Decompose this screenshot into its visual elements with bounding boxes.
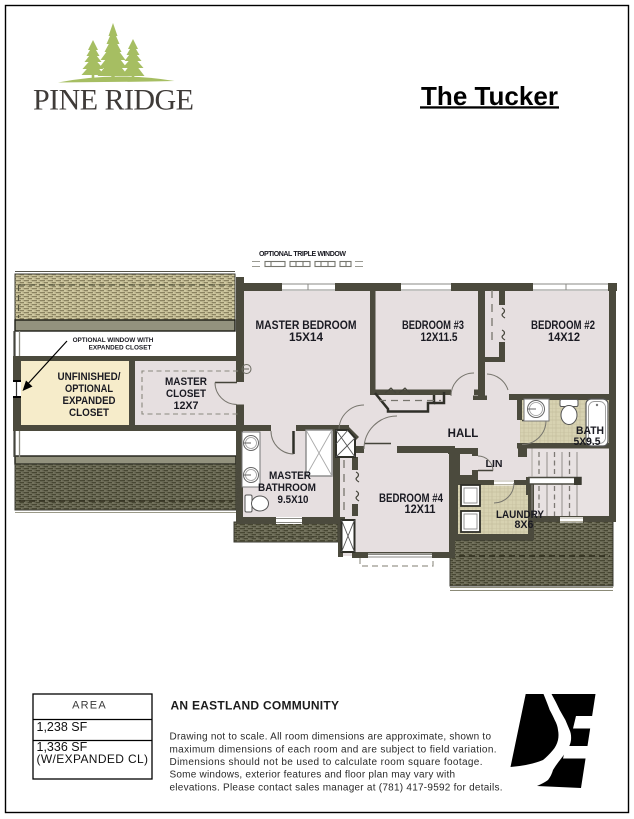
svg-text:MASTER BEDROOM: MASTER BEDROOM	[256, 320, 357, 332]
svg-text:9.5X10: 9.5X10	[278, 494, 309, 506]
svg-text:15X14: 15X14	[289, 332, 324, 344]
svg-text:AREA: AREA	[72, 700, 107, 712]
svg-text:Some windows, exterior feature: Some windows, exterior features and floo…	[170, 770, 456, 781]
svg-text:EXPANDED: EXPANDED	[63, 395, 116, 407]
svg-text:AN EASTLAND COMMUNITY: AN EASTLAND COMMUNITY	[171, 699, 340, 713]
svg-text:(W/EXPANDED CL): (W/EXPANDED CL)	[37, 752, 149, 766]
svg-text:CLOSET: CLOSET	[166, 388, 206, 400]
svg-text:14X12: 14X12	[548, 332, 580, 344]
svg-text:12X11: 12X11	[405, 504, 437, 516]
svg-text:BATHROOM: BATHROOM	[258, 482, 316, 494]
svg-text:UNFINISHED/: UNFINISHED/	[58, 371, 121, 383]
svg-text:BEDROOM #3: BEDROOM #3	[402, 320, 464, 332]
svg-text:12X11.5: 12X11.5	[421, 332, 459, 344]
svg-text:Drawing not to scale. All room: Drawing not to scale. All room dimension…	[170, 732, 492, 743]
svg-text:MASTER: MASTER	[165, 376, 207, 388]
svg-text:PINE RIDGE: PINE RIDGE	[33, 84, 194, 117]
svg-text:OPTIONAL: OPTIONAL	[65, 383, 113, 395]
svg-text:CLOSET: CLOSET	[69, 407, 109, 419]
svg-text:12X7: 12X7	[174, 400, 199, 412]
svg-text:8X6: 8X6	[515, 519, 534, 531]
svg-text:MASTER: MASTER	[269, 470, 311, 482]
svg-text:BEDROOM #2: BEDROOM #2	[531, 320, 595, 332]
svg-text:Dimensions should not be used: Dimensions should not be used to calcula…	[170, 757, 483, 768]
svg-text:maximum dimensions of each roo: maximum dimensions of each room and are …	[170, 744, 497, 755]
svg-text:5X9.5: 5X9.5	[574, 436, 601, 448]
svg-text:EXPANDED CLOSET: EXPANDED CLOSET	[89, 345, 152, 352]
svg-text:elevations. Please contact sal: elevations. Please contact sales manager…	[170, 782, 503, 793]
svg-text:1,238 SF: 1,238 SF	[37, 720, 88, 734]
svg-text:HALL: HALL	[448, 428, 479, 440]
svg-text:OPTIONAL TRIPLE WINDOW: OPTIONAL TRIPLE WINDOW	[259, 251, 346, 258]
svg-text:OPTIONAL WINDOW WITH: OPTIONAL WINDOW WITH	[73, 337, 154, 344]
svg-text:LIN: LIN	[486, 458, 503, 470]
